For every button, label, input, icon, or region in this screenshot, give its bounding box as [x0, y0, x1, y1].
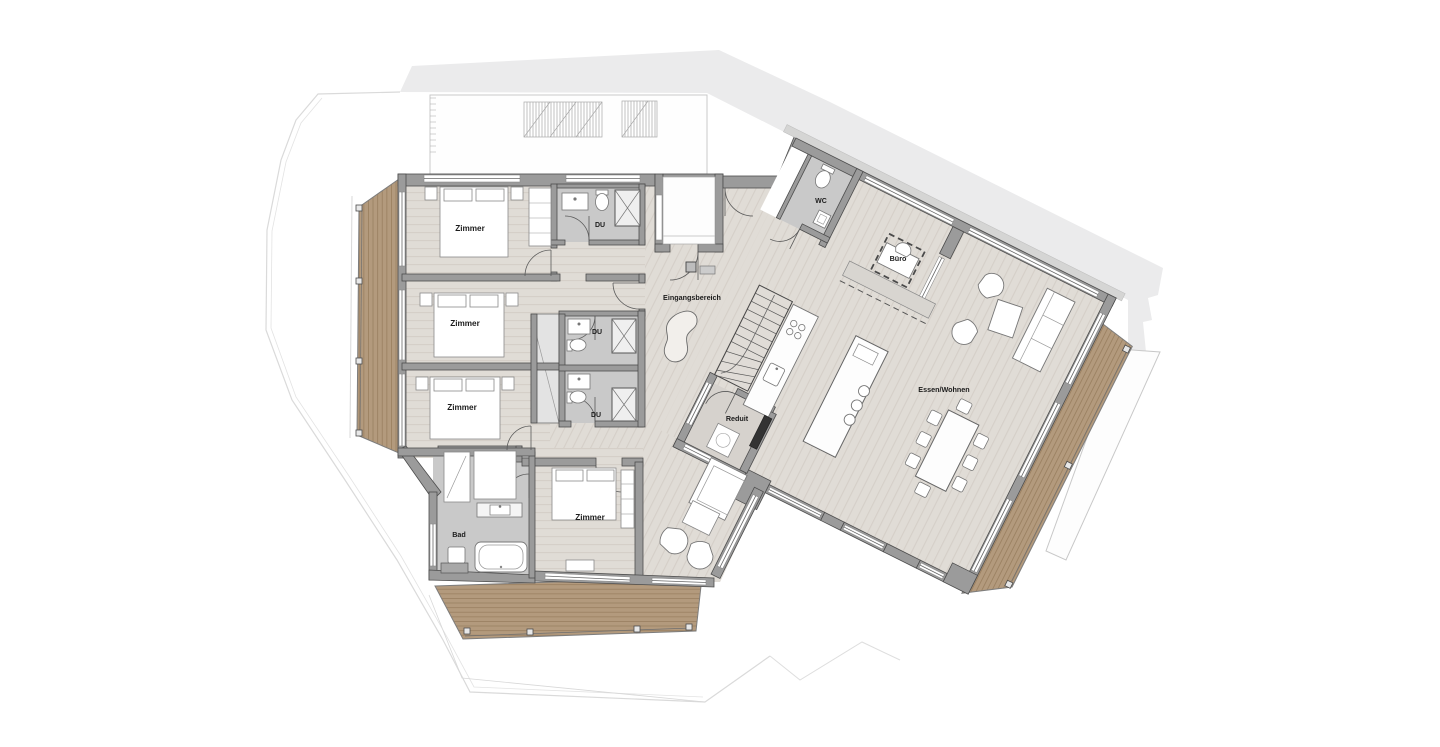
- svg-text:Zimmer: Zimmer: [447, 403, 477, 412]
- svg-text:Bad: Bad: [452, 530, 466, 539]
- svg-text:Zimmer: Zimmer: [450, 319, 480, 328]
- svg-text:Zimmer: Zimmer: [455, 224, 485, 233]
- svg-text:Reduit: Reduit: [726, 414, 749, 423]
- svg-text:DU: DU: [595, 222, 605, 229]
- svg-text:WC: WC: [815, 198, 827, 205]
- svg-text:DU: DU: [592, 329, 602, 336]
- svg-text:DU: DU: [591, 412, 601, 419]
- svg-text:Zimmer: Zimmer: [575, 513, 605, 522]
- svg-text:Essen/Wohnen: Essen/Wohnen: [918, 385, 969, 394]
- svg-text:Büro: Büro: [890, 254, 907, 263]
- svg-text:Eingangsbereich: Eingangsbereich: [663, 293, 721, 302]
